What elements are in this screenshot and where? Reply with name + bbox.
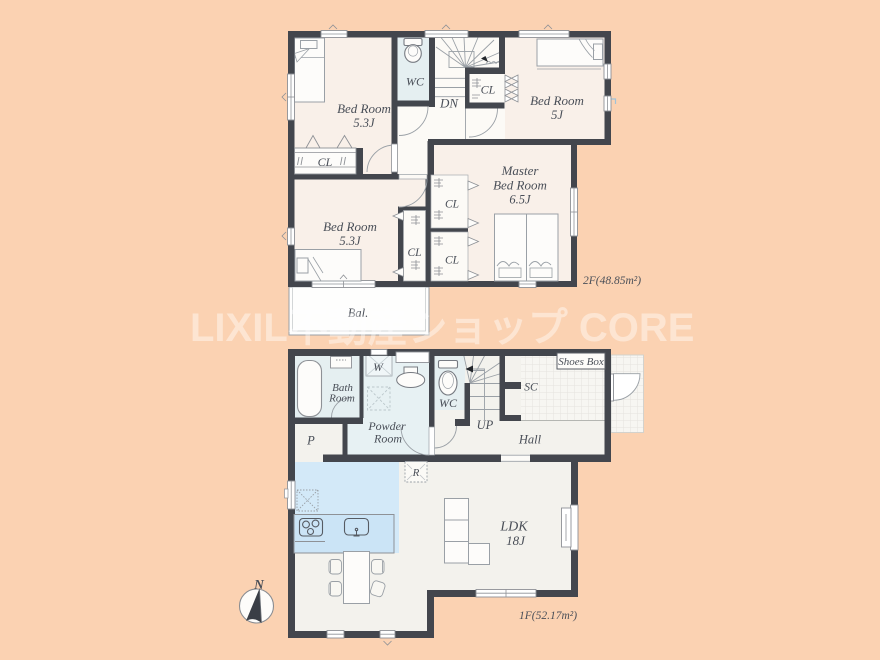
svg-text:UP: UP (477, 418, 494, 432)
svg-text:Hall: Hall (518, 433, 542, 447)
svg-text:SC: SC (524, 382, 538, 394)
svg-text:WC: WC (439, 396, 458, 410)
svg-text:WC: WC (406, 75, 425, 89)
svg-text:Bed Room: Bed Room (530, 93, 584, 108)
svg-text:R: R (412, 467, 420, 479)
svg-text:Master: Master (501, 163, 540, 178)
svg-text:P: P (306, 434, 315, 448)
svg-text:2F(48.85m²): 2F(48.85m²) (583, 275, 641, 287)
svg-text:Shoes Box: Shoes Box (558, 356, 604, 368)
svg-text:CL: CL (481, 83, 496, 97)
svg-text:1F(52.17m²): 1F(52.17m²) (519, 610, 577, 622)
svg-text:5.3J: 5.3J (339, 234, 362, 248)
svg-text:5.3J: 5.3J (353, 116, 376, 130)
svg-text:CL: CL (445, 255, 459, 267)
svg-text:LIXIL不動産ショップ CORE: LIXIL不動産ショップ CORE (190, 306, 694, 350)
svg-text:6.5J: 6.5J (509, 193, 532, 207)
svg-text:CL: CL (318, 155, 333, 169)
svg-text:5J: 5J (551, 108, 564, 122)
svg-text:Room: Room (328, 393, 355, 405)
svg-text:DN: DN (439, 96, 459, 111)
svg-text:Bed Room: Bed Room (337, 101, 391, 116)
svg-text:W: W (373, 362, 384, 374)
svg-text:CL: CL (445, 199, 459, 211)
svg-text:Room: Room (373, 432, 402, 446)
svg-text:Bed Room: Bed Room (493, 178, 547, 193)
svg-text:CL: CL (407, 247, 421, 259)
svg-text:N: N (253, 577, 265, 592)
svg-text:Bed Room: Bed Room (323, 219, 377, 234)
svg-text:18J: 18J (506, 533, 526, 548)
